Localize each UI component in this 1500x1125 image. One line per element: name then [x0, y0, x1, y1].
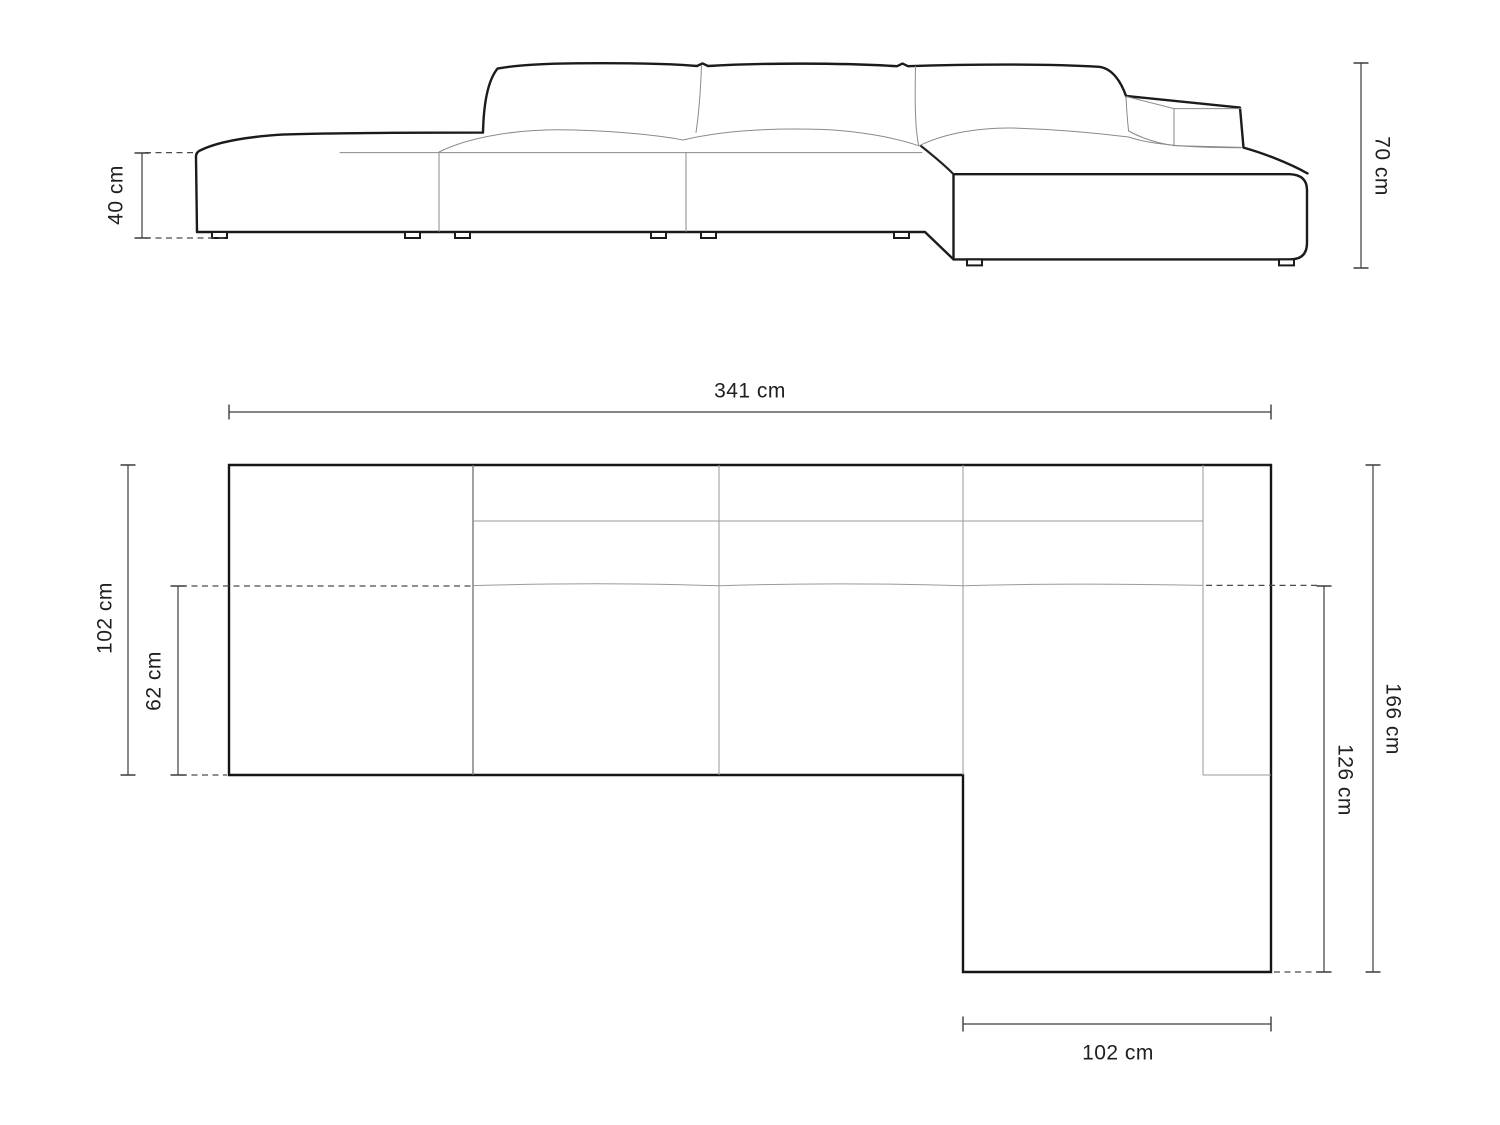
seat-depth-label: 62 cm [143, 651, 166, 711]
sofa-foot [894, 232, 909, 238]
sofa-foot [1279, 259, 1294, 265]
side-seat-cushion-2 [683, 129, 919, 146]
sofa-foot [455, 232, 470, 238]
plan-outline [229, 465, 1271, 972]
sofa-foot [701, 232, 716, 238]
sofa-foot [212, 232, 227, 238]
sofa-dimension-diagram: 40 cm 70 cm 341 cm 102 cm 62 cm 166 cm [0, 0, 1500, 1125]
side-view-dimensions: 40 cm 70 cm [105, 63, 1394, 268]
side-sofa-base-bottom [197, 232, 954, 259]
plan-cushion-front-line [473, 584, 1203, 586]
side-armrest-left-edge [1126, 97, 1129, 131]
side-chaise-top-slant [921, 146, 954, 174]
side-chaise-front-face [954, 174, 1308, 259]
side-armrest-lower-edge [1129, 131, 1242, 147]
diagram-svg: 40 cm 70 cm 341 cm 102 cm 62 cm 166 cm [0, 0, 1500, 1125]
chaise-length-label: 126 cm [1334, 744, 1357, 816]
overall-width-label: 341 cm [714, 380, 786, 403]
overall-depth-label: 102 cm [94, 582, 117, 654]
side-chaise-cushion [919, 128, 1241, 148]
right-total-depth-label: 166 cm [1382, 683, 1405, 755]
plan-view [229, 465, 1271, 972]
side-back-cushion-split-1 [696, 66, 702, 132]
chaise-length-extension-dashes [1206, 585, 1321, 972]
sofa-foot [967, 259, 982, 265]
side-view [196, 63, 1308, 265]
plan-view-dimensions: 341 cm 102 cm 62 cm 166 cm 126 cm 102 cm [94, 380, 1405, 1065]
sofa-foot [651, 232, 666, 238]
overall-height-label: 70 cm [1371, 136, 1394, 196]
seat-height-label: 40 cm [105, 165, 128, 225]
sofa-foot [405, 232, 420, 238]
side-sofa-silhouette [196, 63, 1308, 232]
chaise-width-label: 102 cm [1082, 1042, 1154, 1065]
plan-armrest-divider [1203, 465, 1271, 775]
side-back-cushion-split-2 [915, 66, 918, 145]
seat-height-extension-dashes [145, 153, 228, 238]
seat-depth-extension-dashes [181, 586, 471, 775]
